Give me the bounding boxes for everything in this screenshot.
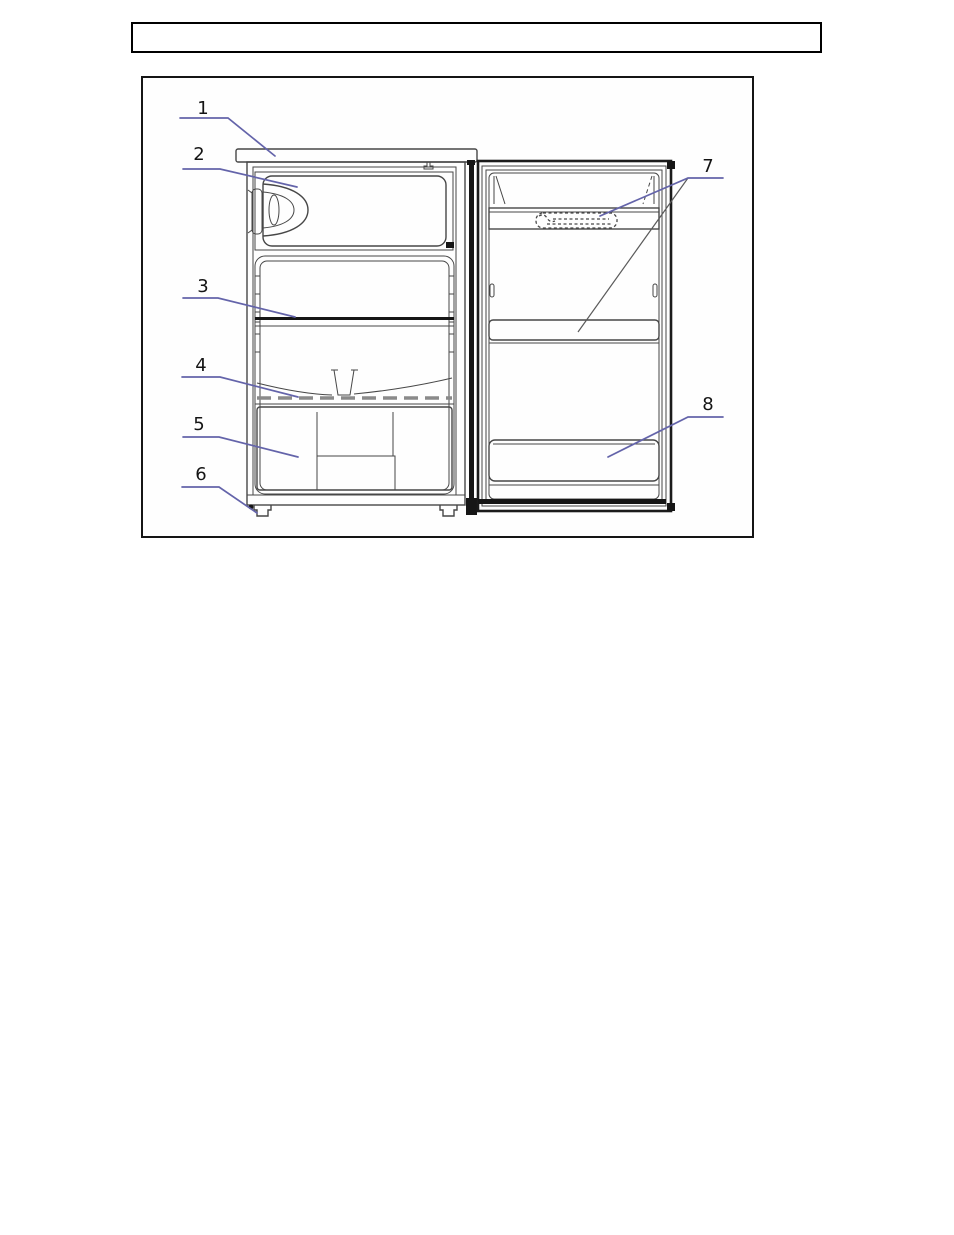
freezer-handle	[263, 184, 308, 236]
cabinet-liner-outer	[253, 167, 456, 495]
shelf-support	[449, 276, 454, 294]
callout-4: 4	[182, 355, 298, 397]
callout-8-number: 8	[702, 394, 713, 415]
freezer-latch-hooks	[248, 190, 252, 233]
callout-2-number: 2	[193, 144, 204, 165]
levelling-foot-right	[440, 505, 457, 516]
door-liner	[489, 173, 659, 499]
freezer-door	[263, 176, 446, 246]
door-frame-line	[482, 166, 666, 506]
door-edge-cap	[467, 160, 475, 165]
callout-3: 3	[183, 276, 295, 317]
crisper-drawer	[257, 407, 452, 490]
liner-clip-right	[653, 284, 657, 297]
callout-5-number: 5	[193, 414, 204, 435]
fridge-liner	[255, 256, 454, 494]
cabinet	[236, 149, 477, 516]
door	[466, 160, 675, 515]
top-hinge-bracket	[424, 162, 433, 169]
refrigerator-diagram: 1 2 3 4 5 6	[143, 78, 752, 536]
door-bottom-hinge	[466, 498, 477, 515]
door-outer	[478, 161, 671, 511]
middle-door-balcony	[489, 320, 659, 340]
egg-tray	[536, 213, 617, 228]
callout-1-number: 1	[197, 98, 208, 119]
callout-4-number: 4	[195, 355, 206, 376]
worktop	[236, 149, 477, 162]
door-frame-line2	[486, 170, 662, 502]
freezer-handle-detail	[269, 195, 279, 225]
shelf	[255, 317, 454, 320]
callout-2: 2	[183, 144, 297, 187]
diagram-frame: 1 2 3 4 5 6	[141, 76, 754, 538]
shelf-support	[449, 334, 454, 352]
callout-6-number: 6	[195, 464, 206, 485]
liner-clip-left	[490, 284, 494, 297]
hinge-pin-top	[667, 161, 675, 169]
door-gusset-left	[494, 176, 505, 204]
manual-page: { "header_box": { "text": "" }, "diagram…	[0, 0, 954, 1235]
callout-5: 5	[183, 414, 298, 457]
drain-cup	[331, 370, 358, 395]
shelf-support	[255, 334, 260, 352]
callout-6: 6	[182, 464, 257, 513]
crisper-recess	[317, 456, 395, 490]
upper-door-balcony	[489, 208, 659, 229]
levelling-foot-left	[254, 505, 271, 516]
lower-door-balcony	[489, 440, 659, 481]
callout-3-number: 3	[197, 276, 208, 297]
shelf-support	[255, 276, 260, 294]
cabinet-body	[247, 162, 465, 505]
title-box	[131, 22, 822, 53]
callout-7-number: 7	[702, 156, 713, 177]
door-bottom-edge	[478, 499, 666, 504]
hinge-pin-bottom	[667, 503, 675, 511]
callout-7: 7	[578, 156, 723, 332]
door-hinge-edge	[469, 165, 474, 498]
crisper-cover-curve-right	[354, 378, 452, 394]
latch-keeper	[446, 242, 454, 248]
door-gusset-right-diag	[643, 176, 652, 204]
